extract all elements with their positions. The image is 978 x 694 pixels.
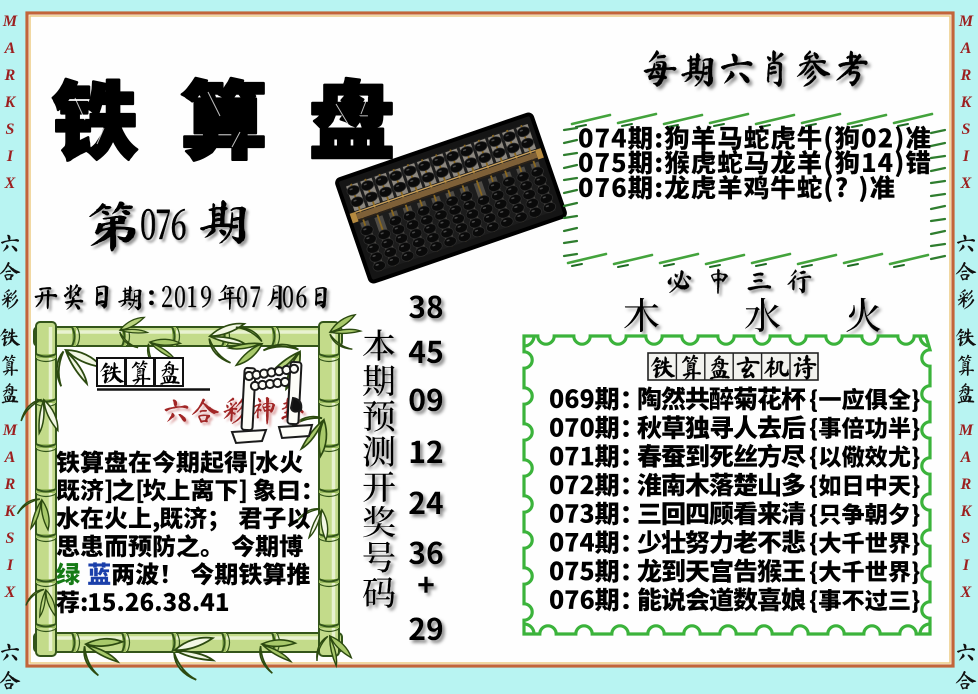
svg-text:R: R <box>960 476 972 493</box>
svg-text:S: S <box>962 530 971 547</box>
svg-text:K: K <box>4 503 17 520</box>
svg-text:A: A <box>4 40 16 57</box>
svg-text:R: R <box>960 67 972 84</box>
svg-text:X: X <box>4 584 16 601</box>
svg-text:S: S <box>962 121 971 138</box>
svg-text:R: R <box>4 67 16 84</box>
svg-text:A: A <box>4 449 16 466</box>
svg-text:X: X <box>4 175 16 192</box>
svg-text:K: K <box>960 503 973 520</box>
svg-text:X: X <box>960 175 972 192</box>
svg-text:M: M <box>958 422 974 439</box>
svg-text:I: I <box>6 148 14 165</box>
svg-text:M: M <box>2 13 18 30</box>
svg-text:S: S <box>6 121 15 138</box>
svg-text:I: I <box>962 148 970 165</box>
svg-text:A: A <box>960 40 972 57</box>
svg-text:K: K <box>960 94 973 111</box>
svg-text:M: M <box>958 13 974 30</box>
svg-text:K: K <box>4 94 17 111</box>
svg-text:I: I <box>962 557 970 574</box>
svg-text:S: S <box>6 530 15 547</box>
svg-text:R: R <box>4 476 16 493</box>
svg-text:M: M <box>2 422 18 439</box>
svg-text:A: A <box>960 449 972 466</box>
svg-text:I: I <box>6 557 14 574</box>
svg-text:X: X <box>960 584 972 601</box>
